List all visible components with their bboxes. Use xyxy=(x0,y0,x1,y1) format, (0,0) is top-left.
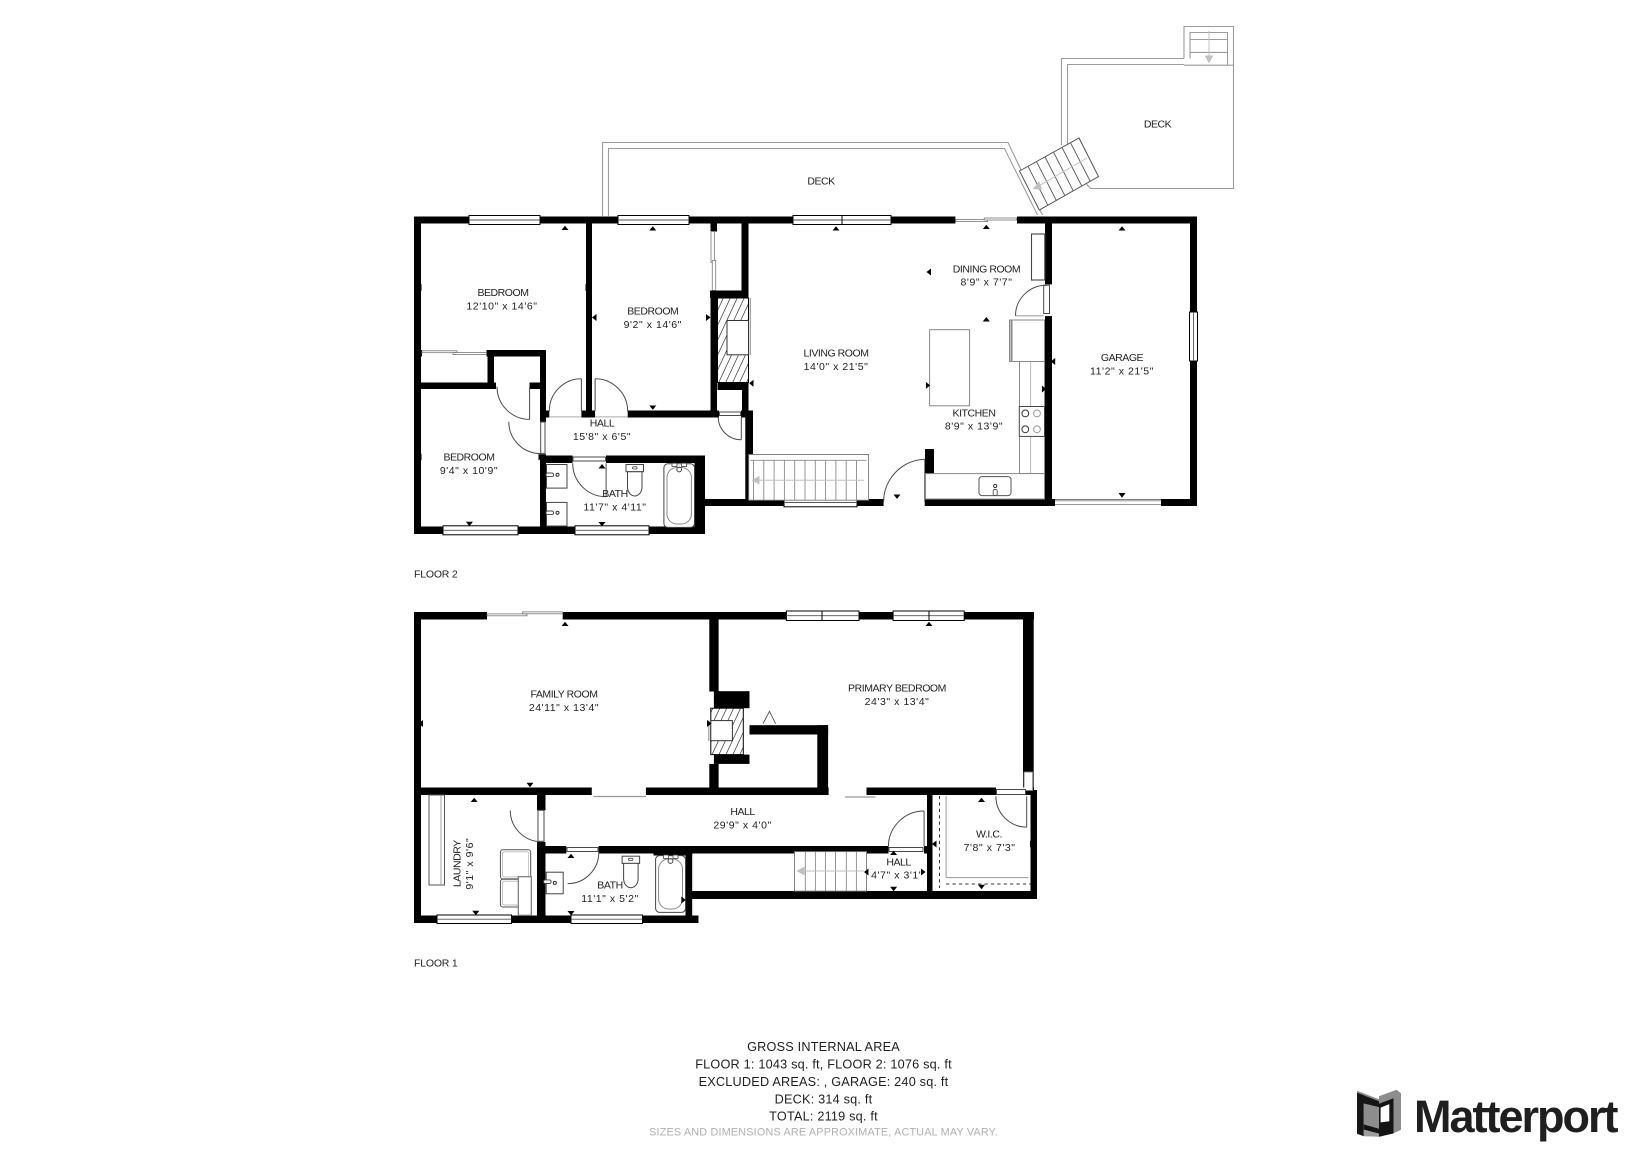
svg-text:14'0" x 21'5": 14'0" x 21'5" xyxy=(804,361,869,373)
svg-text:DECK: 314 sq. ft: DECK: 314 sq. ft xyxy=(775,1093,873,1107)
svg-text:8'9" x 7'7": 8'9" x 7'7" xyxy=(961,277,1013,289)
svg-text:BEDROOM: BEDROOM xyxy=(477,287,528,299)
svg-text:LAUNDRY: LAUNDRY xyxy=(452,840,464,887)
svg-text:HALL: HALL xyxy=(730,806,755,818)
svg-text:24'11" x 13'4": 24'11" x 13'4" xyxy=(529,702,599,714)
svg-text:11'7" x 4'11": 11'7" x 4'11" xyxy=(583,502,646,514)
svg-text:DINING ROOM: DINING ROOM xyxy=(953,264,1020,276)
svg-text:7'8" x 7'3": 7'8" x 7'3" xyxy=(964,842,1016,854)
svg-text:8'9" x 13'9": 8'9" x 13'9" xyxy=(945,421,1003,433)
svg-text:GARAGE: GARAGE xyxy=(1101,352,1144,364)
svg-text:TOTAL: 2119 sq. ft: TOTAL: 2119 sq. ft xyxy=(769,1110,878,1124)
svg-text:HALL: HALL xyxy=(590,418,615,430)
svg-text:DECK: DECK xyxy=(1144,119,1172,131)
svg-text:29'9" x 4'0": 29'9" x 4'0" xyxy=(713,820,771,832)
svg-text:11'2" x 21'5": 11'2" x 21'5" xyxy=(1090,366,1154,378)
svg-text:W.I.C.: W.I.C. xyxy=(976,829,1002,841)
svg-text:12'10" x 14'6": 12'10" x 14'6" xyxy=(466,301,537,313)
svg-text:DECK: DECK xyxy=(807,176,835,188)
svg-text:KITCHEN: KITCHEN xyxy=(953,408,996,420)
svg-text:FLOOR 1: FLOOR 1 xyxy=(414,958,458,970)
svg-text:EXCLUDED AREAS: , GARAGE: 240: EXCLUDED AREAS: , GARAGE: 240 sq. ft xyxy=(699,1075,949,1089)
svg-text:BEDROOM: BEDROOM xyxy=(443,452,494,464)
svg-text:Matterport: Matterport xyxy=(1414,1091,1619,1142)
svg-text:FAMILY ROOM: FAMILY ROOM xyxy=(530,689,597,701)
svg-text:9'2" x 14'6": 9'2" x 14'6" xyxy=(624,319,682,331)
svg-text:PRIMARY BEDROOM: PRIMARY BEDROOM xyxy=(848,683,946,695)
svg-text:9'1" x 9'6": 9'1" x 9'6" xyxy=(464,838,476,890)
svg-text:BEDROOM: BEDROOM xyxy=(627,306,678,318)
svg-text:15'8" x 6'5": 15'8" x 6'5" xyxy=(573,431,631,443)
svg-text:BATH: BATH xyxy=(597,880,622,892)
svg-text:LIVING ROOM: LIVING ROOM xyxy=(803,348,868,360)
svg-text:9'4" x 10'9": 9'4" x 10'9" xyxy=(440,465,498,477)
svg-text:4'7" x 3'1": 4'7" x 3'1" xyxy=(871,870,923,882)
svg-text:SIZES AND DIMENSIONS ARE APPRO: SIZES AND DIMENSIONS ARE APPROXIMATE, AC… xyxy=(649,1127,998,1139)
svg-text:FLOOR 1: 1043 sq. ft, FLOOR 2:: FLOOR 1: 1043 sq. ft, FLOOR 2: 1076 sq. … xyxy=(695,1058,952,1072)
svg-text:GROSS INTERNAL AREA: GROSS INTERNAL AREA xyxy=(747,1040,900,1054)
svg-text:BATH: BATH xyxy=(602,488,627,500)
svg-text:HALL: HALL xyxy=(886,857,911,869)
svg-text:24'3" x 13'4": 24'3" x 13'4" xyxy=(865,696,930,708)
svg-text:11'1" x 5'2": 11'1" x 5'2" xyxy=(581,893,639,905)
svg-text:FLOOR 2: FLOOR 2 xyxy=(414,569,458,581)
